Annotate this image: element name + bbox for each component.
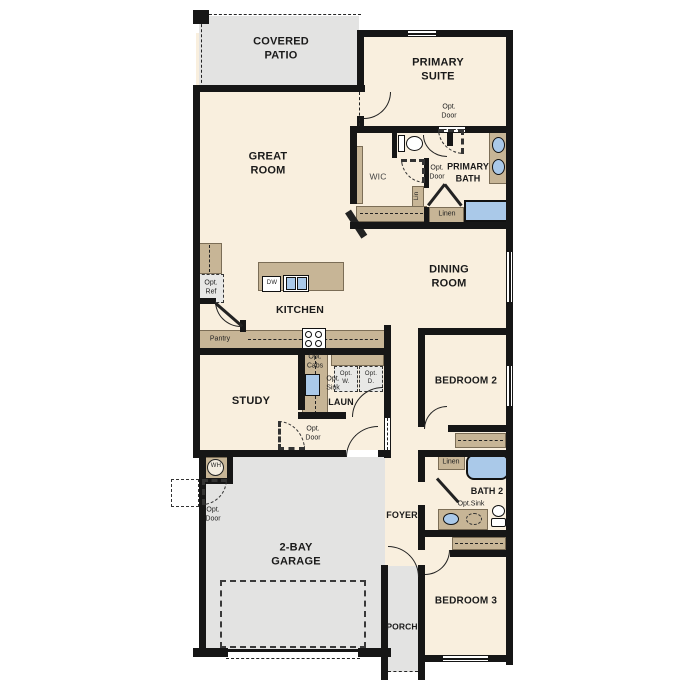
wic-shelf-rod [360, 213, 423, 214]
wall [424, 530, 513, 537]
dining-room-label: DINING ROOM [429, 263, 469, 292]
patio-dashed-edge-left [201, 14, 202, 88]
wall [418, 457, 425, 482]
island-sink-basin-right [297, 277, 307, 290]
window-glass-line [443, 658, 488, 660]
wall [298, 354, 305, 410]
bath2-tub [466, 454, 509, 480]
window-glass-line [509, 366, 511, 406]
bedroom3-closet-rod [455, 543, 503, 544]
wall [392, 132, 397, 158]
primary-shower [464, 200, 508, 222]
wall [193, 348, 391, 355]
patio-post [193, 10, 209, 24]
bath2-toilet-tank [491, 518, 506, 527]
hall-linen-label: Linen [442, 459, 459, 468]
pantry-label: Pantry [210, 336, 230, 345]
wall [298, 412, 346, 419]
burner-icon [315, 340, 322, 347]
garage-label: 2-BAY GARAGE [271, 541, 320, 570]
wall [418, 328, 513, 335]
opt-ref-label: Opt. Ref [204, 279, 217, 297]
wall [418, 565, 425, 680]
cabinet-divider-line [209, 245, 210, 272]
opt-dryer-label: Opt. D. [365, 371, 377, 387]
garage-door-dashed-line [226, 658, 360, 659]
kitchen-label: KITCHEN [276, 304, 324, 318]
wall-left-exterior [193, 85, 200, 458]
window-glass-line [408, 33, 436, 35]
laundry-label: LAUN [328, 397, 353, 409]
window-glass-line [509, 252, 511, 302]
opt-sink-laundry-label: Opt. Sink [326, 375, 340, 393]
porch-label: PORCH [386, 621, 417, 632]
cased-opening-greatroom [359, 92, 360, 126]
wall [418, 450, 513, 457]
water-heater-label: WH [211, 463, 221, 471]
bedroom2-label: BEDROOM 2 [435, 375, 497, 388]
burner-icon [305, 340, 312, 347]
burner-icon [315, 331, 322, 338]
wic-shelf-bottom [356, 206, 427, 222]
opt-cabs-label: Opt. Cabs [307, 353, 323, 371]
covered-patio-label: COVERED PATIO [253, 35, 309, 64]
wall [357, 30, 364, 92]
wall [418, 505, 425, 550]
wall [350, 126, 513, 133]
study-label: STUDY [232, 394, 270, 408]
lin-closet-label: Lin [414, 192, 422, 201]
wall [450, 550, 513, 557]
porch-area [388, 566, 418, 672]
garage-door-header-line [228, 649, 358, 652]
wall [193, 298, 216, 304]
opt-door-primary-label: Opt. Door [441, 103, 456, 121]
primary-bath-label: PRIMARY BATH [447, 161, 489, 184]
bedroom3-label: BEDROOM 3 [435, 595, 497, 608]
opt-door-garage-label: Opt. Door [205, 506, 220, 524]
wall [418, 328, 425, 427]
laundry-optional-sink [305, 374, 320, 396]
foyer-label: FOYER [386, 510, 418, 522]
bath2-toilet-bowl [492, 505, 505, 517]
wic-label: WIC [369, 171, 386, 182]
wall [193, 648, 228, 657]
opt-door-exterior-box [171, 479, 199, 507]
wall [193, 85, 365, 92]
primary-linen-label: Linen [438, 211, 455, 220]
opt-sink-bath2-label: Opt.Sink [458, 501, 485, 510]
opt-door-study-label: Opt. Door [305, 425, 320, 443]
primary-toilet-tank [398, 135, 405, 152]
primary-toilet-bowl [406, 136, 423, 151]
bath2-sink [443, 513, 459, 525]
primary-sink-1 [492, 137, 505, 153]
great-room-label: GREAT ROOM [249, 150, 288, 179]
island-sink-basin-left [286, 277, 296, 290]
bath2-label: BATH 2 [471, 486, 503, 498]
floor-plan: COVERED PATIO PRIMARY SUITE GREAT ROOM D… [0, 0, 687, 687]
primary-sink-2 [492, 159, 505, 175]
wall [350, 126, 357, 204]
cased-opening-dash [387, 418, 388, 450]
patio-dashed-edge-top [199, 14, 361, 15]
burner-icon [305, 331, 312, 338]
primary-suite-label: PRIMARY SUITE [412, 56, 464, 85]
garage-door-outline [220, 580, 366, 648]
opt-washer-label: Opt. W. [340, 371, 352, 387]
bath2-optional-sink [466, 513, 482, 525]
wall [424, 207, 429, 224]
porch-dashed-edge [388, 671, 418, 672]
wall [448, 425, 513, 432]
dishwasher-label: DW [267, 280, 277, 288]
bedroom2-closet-rod [458, 440, 503, 441]
wall [350, 222, 513, 229]
opt-door-wic-label: Opt. Door [429, 164, 444, 182]
